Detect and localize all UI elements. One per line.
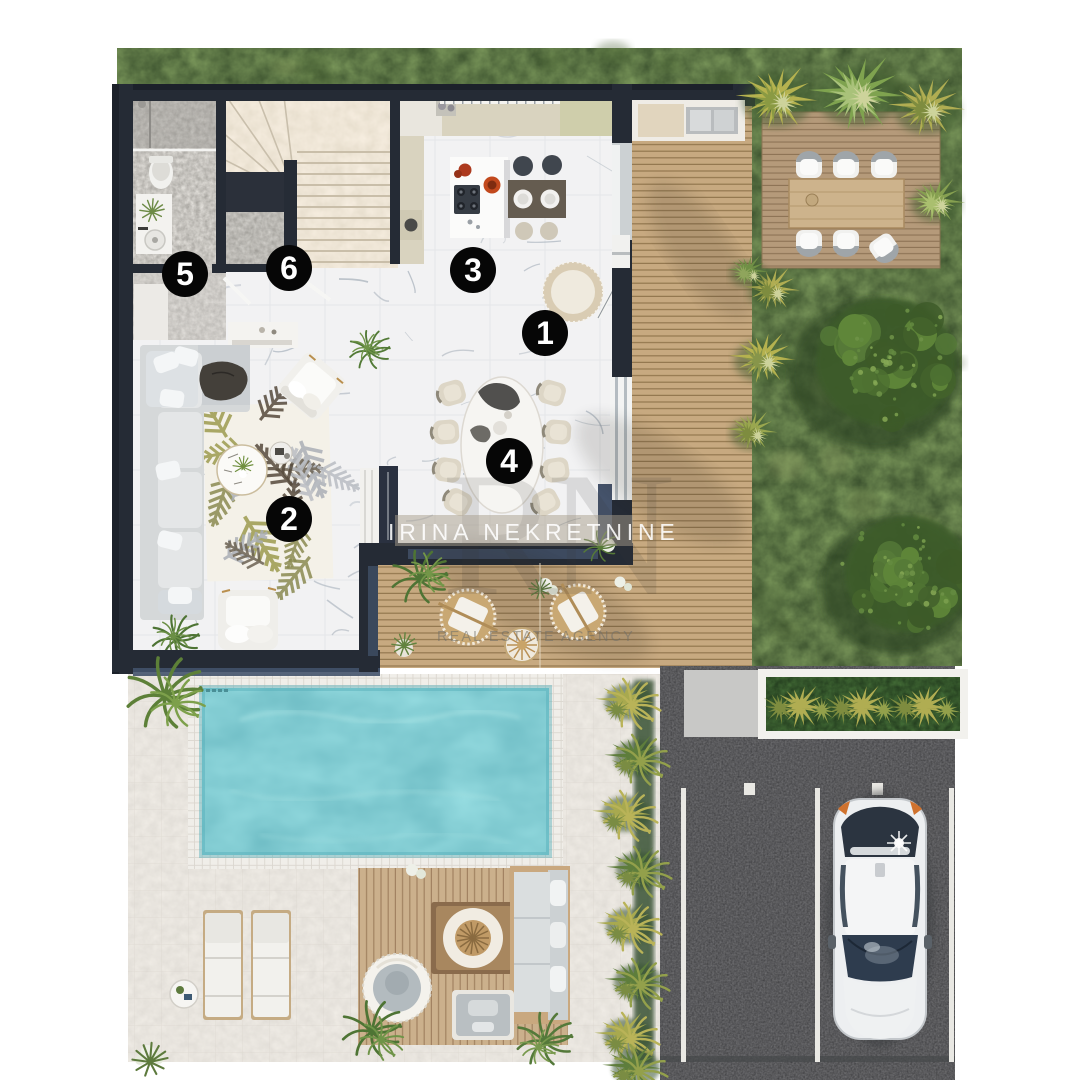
svg-text:3: 3 xyxy=(464,252,482,288)
svg-text:6: 6 xyxy=(280,250,298,286)
svg-text:5: 5 xyxy=(176,256,194,292)
svg-text:IRINA NEKRETNINE: IRINA NEKRETNINE xyxy=(388,519,680,545)
svg-text:REAL ESTATE AGENCY: REAL ESTATE AGENCY xyxy=(437,629,635,645)
svg-text:1: 1 xyxy=(536,315,554,351)
svg-text:2: 2 xyxy=(280,501,298,537)
svg-text:4: 4 xyxy=(500,443,518,479)
